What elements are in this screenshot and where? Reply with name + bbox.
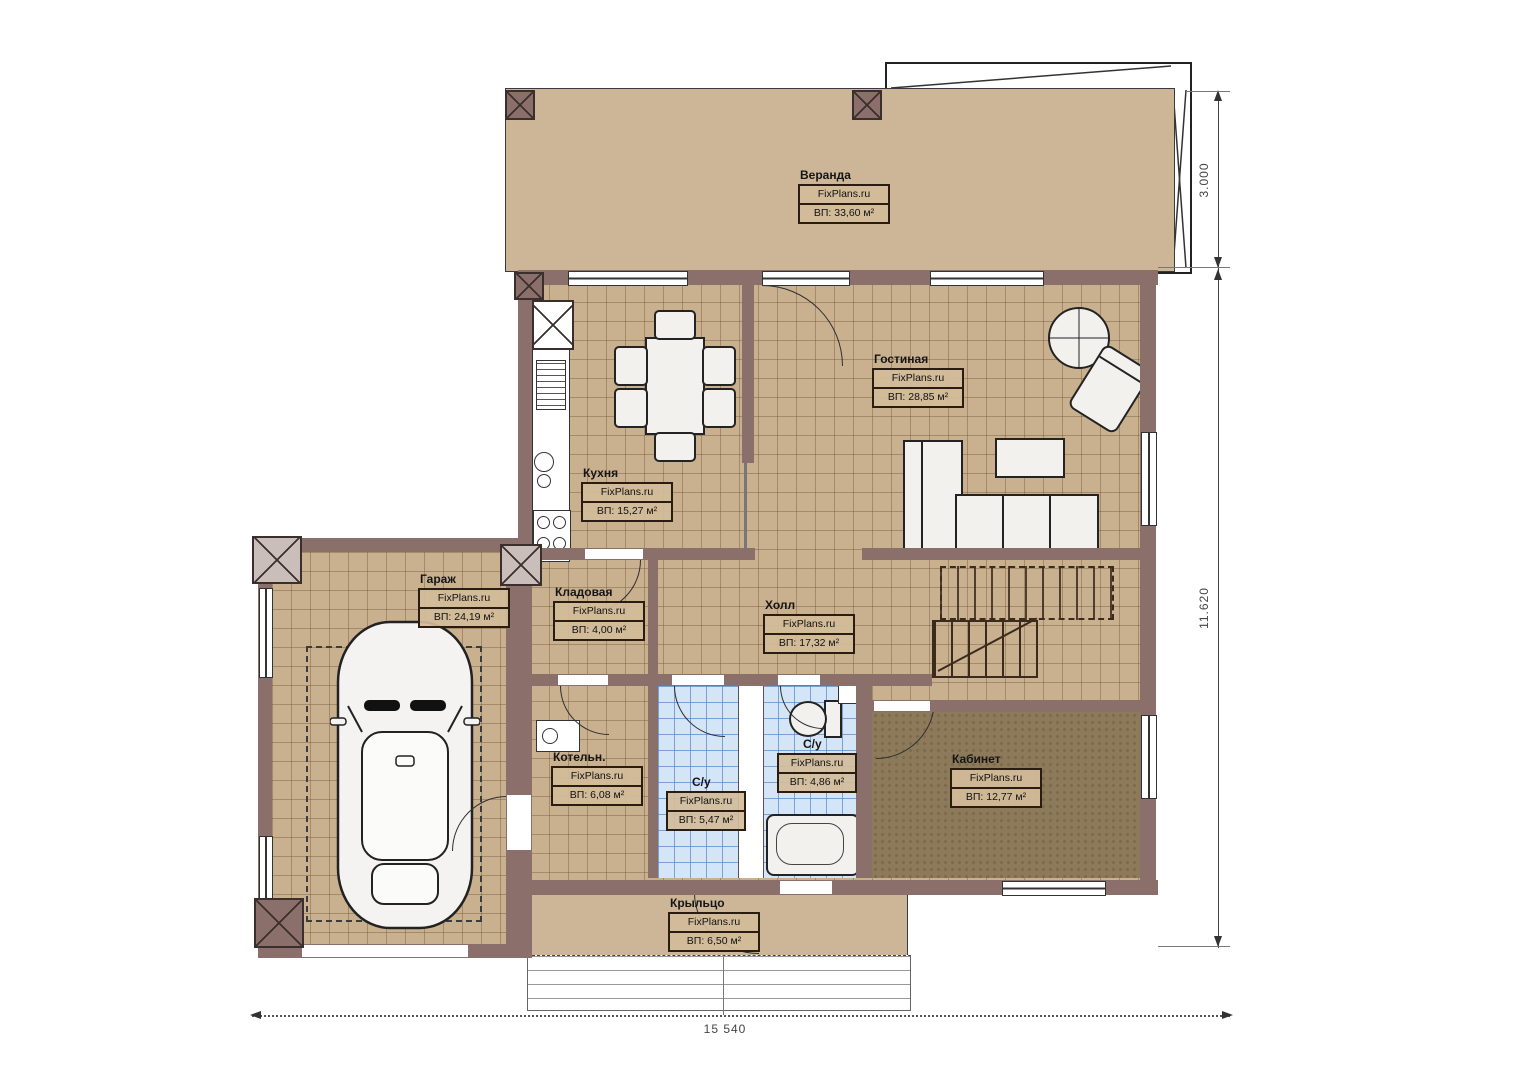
veranda-post <box>852 90 882 120</box>
room-label-boiler: Котельн. FixPlans.ru ВП: 6,08 м² <box>551 750 643 806</box>
room-label-kitchen: Кухня FixPlans.ru ВП: 15,27 м² <box>581 466 673 522</box>
room-label-storage: Кладовая FixPlans.ru ВП: 4,00 м² <box>553 585 645 641</box>
watermark: FixPlans.ru <box>874 370 962 389</box>
wall-storage-right <box>648 560 658 686</box>
room-area-box: FixPlans.ru ВП: 4,00 м² <box>553 601 645 641</box>
bathroom2-door-opening <box>778 675 820 685</box>
garage-door-opening <box>507 795 531 850</box>
room-area-box: FixPlans.ru ВП: 33,60 м² <box>798 184 890 224</box>
room-name: С/у <box>692 775 746 789</box>
watermark: FixPlans.ru <box>555 603 643 622</box>
veranda-door-opening <box>762 271 850 286</box>
room-area-box: FixPlans.ru ВП: 15,27 м² <box>581 482 673 522</box>
window <box>1141 715 1157 799</box>
room-name: Гараж <box>420 572 510 586</box>
room-area: ВП: 6,50 м² <box>670 933 758 950</box>
watermark: FixPlans.ru <box>668 793 744 812</box>
dimension-line-bottom <box>252 1015 1230 1017</box>
room-area: ВП: 4,86 м² <box>779 774 855 791</box>
watermark: FixPlans.ru <box>553 768 641 787</box>
office-door-opening <box>874 701 930 711</box>
room-name: Гостиная <box>874 352 964 366</box>
dimension-house-side: 11.620 <box>1197 571 1211 645</box>
dimension-total-width: 15 540 <box>645 1022 805 1036</box>
watermark: FixPlans.ru <box>779 755 855 774</box>
wall-left-upper <box>518 270 532 552</box>
boiler-dial <box>542 728 558 744</box>
dimension-veranda-depth: 3.000 <box>1197 150 1211 210</box>
sliding-door-track <box>744 460 747 550</box>
room-area-box: FixPlans.ru ВП: 4,86 м² <box>777 753 857 793</box>
window <box>930 271 1044 286</box>
wall-right <box>1140 270 1156 895</box>
dining-chair <box>702 388 736 428</box>
room-area-box: FixPlans.ru ВП: 6,50 м² <box>668 912 760 952</box>
room-name: С/у <box>803 737 857 751</box>
dimension-arrow <box>1214 269 1222 280</box>
room-area: ВП: 17,32 м² <box>765 635 853 652</box>
room-name: Кухня <box>583 466 673 480</box>
room-label-veranda: Веранда FixPlans.ru ВП: 33,60 м² <box>798 168 890 224</box>
room-area-box: FixPlans.ru ВП: 6,08 м² <box>551 766 643 806</box>
room-area: ВП: 28,85 м² <box>874 389 962 406</box>
dining-chair <box>702 346 736 386</box>
garage-corner-pad <box>254 898 304 948</box>
tv-stand <box>995 438 1065 478</box>
dining-chair <box>614 346 648 386</box>
room-area-box: FixPlans.ru ВП: 28,85 м² <box>872 368 964 408</box>
garage-corner-pad <box>252 536 302 584</box>
watermark: FixPlans.ru <box>583 484 671 503</box>
stairs-lower-flight <box>932 620 1038 678</box>
room-area: ВП: 24,19 м² <box>420 609 508 626</box>
room-area-box: FixPlans.ru ВП: 17,32 м² <box>763 614 855 654</box>
bathtub-basin <box>776 823 844 865</box>
porch-steps <box>527 955 911 1011</box>
dimension-arrow <box>1222 1011 1233 1019</box>
room-label-living: Гостиная FixPlans.ru ВП: 28,85 м² <box>872 352 964 408</box>
room-label-garage: Гараж FixPlans.ru ВП: 24,19 м² <box>418 572 510 628</box>
witness-line-vertical <box>723 957 724 1015</box>
room-area: ВП: 4,00 м² <box>555 622 643 639</box>
dining-chair <box>654 432 696 462</box>
sofa-seat-section <box>955 494 1099 550</box>
room-name: Кабинет <box>952 752 1042 766</box>
room-area-box: FixPlans.ru ВП: 24,19 м² <box>418 588 510 628</box>
watermark: FixPlans.ru <box>765 616 853 635</box>
witness-line <box>1186 91 1230 92</box>
room-area-box: FixPlans.ru ВП: 5,47 м² <box>666 791 746 831</box>
witness-line <box>1158 267 1230 268</box>
wall-kitchen-living <box>742 283 754 463</box>
dining-table <box>645 337 705 435</box>
bathroom1-door-opening <box>672 675 724 685</box>
watermark: FixPlans.ru <box>952 770 1040 789</box>
garage-gate-opening <box>302 945 468 957</box>
dimension-line-house <box>1218 268 1219 948</box>
stairs-upper-flight <box>940 566 1114 620</box>
room-area: ВП: 5,47 м² <box>668 812 744 829</box>
witness-line <box>1158 946 1230 947</box>
room-area: ВП: 15,27 м² <box>583 503 671 520</box>
watermark: FixPlans.ru <box>420 590 508 609</box>
window <box>568 271 688 286</box>
watermark: FixPlans.ru <box>800 186 888 205</box>
wall-below-living <box>862 548 1140 560</box>
kitchen-sink-small <box>537 474 551 488</box>
room-name: Кладовая <box>555 585 645 599</box>
room-area-box: FixPlans.ru ВП: 12,77 м² <box>950 768 1042 808</box>
car-top-view <box>330 614 480 936</box>
floor-plan-canvas: 3.000 11.620 15 540 Веранда FixPlans.ru … <box>0 0 1528 1080</box>
vent-shaft <box>532 300 574 350</box>
stove-burner <box>553 516 566 529</box>
stove-burner <box>537 516 550 529</box>
room-area: ВП: 12,77 м² <box>952 789 1040 806</box>
bathtub <box>766 814 860 876</box>
watermark: FixPlans.ru <box>670 914 758 933</box>
veranda-post <box>505 90 535 120</box>
kitchen-sink <box>534 452 554 472</box>
room-label-porch: Крыльцо FixPlans.ru ВП: 6,50 м² <box>668 896 760 952</box>
window <box>1141 432 1157 526</box>
storage-door-opening <box>585 549 643 559</box>
dining-chair <box>654 310 696 340</box>
room-name: Веранда <box>800 168 890 182</box>
dimension-line-veranda <box>1218 92 1219 268</box>
dimension-arrow <box>250 1011 261 1019</box>
room-area: ВП: 6,08 м² <box>553 787 641 804</box>
room-name: Котельн. <box>553 750 643 764</box>
room-label-office: Кабинет FixPlans.ru ВП: 12,77 м² <box>950 752 1042 808</box>
sofa-left-section <box>903 440 963 550</box>
wall-bathroom1-left <box>648 686 658 878</box>
room-area: ВП: 33,60 м² <box>800 205 888 222</box>
room-label-hall: Холл FixPlans.ru ВП: 17,32 м² <box>763 598 855 654</box>
room-name: Крыльцо <box>670 896 760 910</box>
room-label-bathroom2: С/у FixPlans.ru ВП: 4,86 м² <box>777 737 857 793</box>
boiler-door-opening <box>558 675 608 685</box>
boiler <box>536 720 580 752</box>
window <box>1002 881 1106 896</box>
fridge <box>536 360 566 410</box>
dining-chair <box>614 388 648 428</box>
room-label-bathroom1: С/у FixPlans.ru ВП: 5,47 м² <box>666 775 746 831</box>
porch-door-opening <box>780 881 832 894</box>
wall-bathroom2-right <box>856 686 872 878</box>
corner-post <box>514 272 544 300</box>
room-name: Холл <box>765 598 855 612</box>
garage-window <box>259 588 273 678</box>
